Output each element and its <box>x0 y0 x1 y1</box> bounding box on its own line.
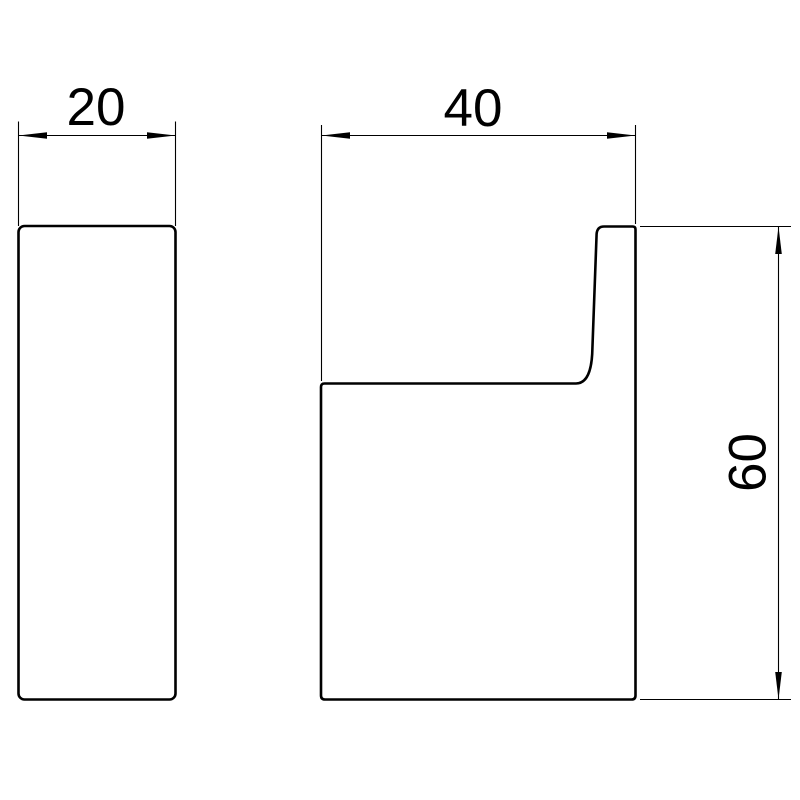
side-view-outline <box>19 226 176 700</box>
technical-drawing: 20 40 60 <box>0 0 800 800</box>
side-view <box>19 226 176 700</box>
dimension-label-height: 60 <box>719 433 778 492</box>
dimension-label-side-width: 20 <box>67 78 126 137</box>
drawing-canvas: 20 40 60 <box>0 0 800 800</box>
dimension-label-projection: 40 <box>444 79 503 138</box>
